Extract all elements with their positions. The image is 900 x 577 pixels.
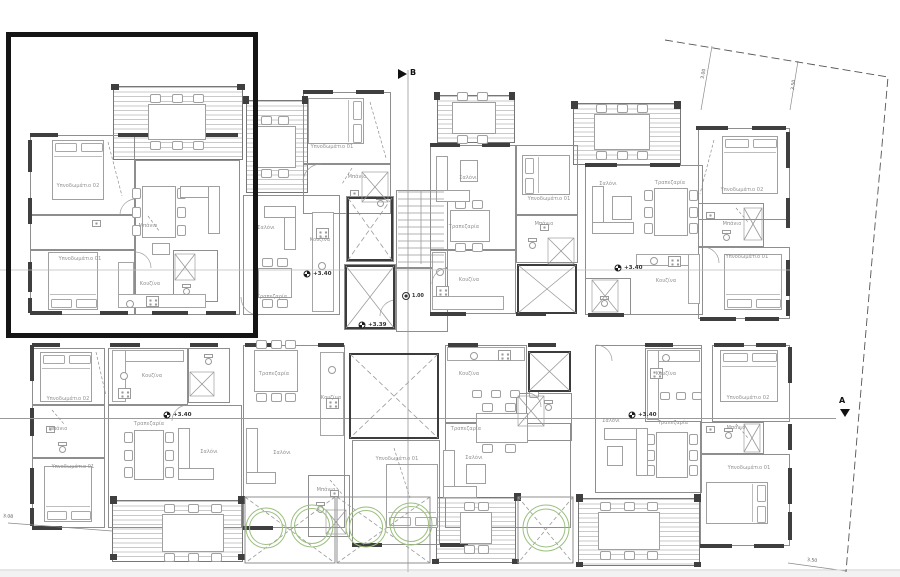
wc-tank — [544, 400, 553, 404]
wc-tank — [58, 442, 67, 446]
pillow — [389, 517, 411, 526]
toilet-icon — [182, 284, 191, 296]
dining-table-icon — [134, 430, 164, 480]
wall-segment — [318, 343, 344, 347]
sofa-icon — [612, 196, 632, 220]
sink-icon — [120, 372, 128, 380]
chair-icon — [689, 223, 698, 234]
wall-segment — [243, 526, 273, 530]
shaft-diagonal — [362, 172, 388, 202]
sofa-icon — [178, 428, 190, 480]
sofa-icon — [436, 156, 448, 202]
wall-segment — [674, 101, 681, 109]
wc-tank — [600, 296, 609, 300]
reference-line — [788, 563, 846, 571]
room-label: Τραπεζαρία — [134, 421, 164, 427]
shower-icon — [548, 238, 574, 264]
sofa-icon — [152, 243, 170, 255]
dimension-label: 3.00 — [701, 69, 708, 80]
door-swing-dash — [736, 424, 748, 438]
tree-planting-icon — [291, 505, 333, 547]
chair-icon — [455, 200, 466, 209]
wall-segment — [696, 126, 728, 130]
sofa-icon — [592, 186, 604, 234]
toilet-icon — [58, 442, 67, 454]
room-label: Μπάνιο — [535, 221, 554, 227]
chair-icon — [647, 502, 658, 511]
room-outline — [32, 458, 105, 528]
pillow — [525, 158, 534, 174]
kitchen-counter-icon — [647, 350, 700, 362]
blanket-line — [348, 100, 349, 142]
shower-icon — [362, 172, 388, 202]
wall-segment — [509, 92, 515, 100]
room-outline — [303, 164, 391, 214]
blanket-line — [388, 512, 436, 513]
wall-segment — [430, 143, 460, 147]
sofa-icon — [636, 428, 648, 476]
chair-icon — [278, 169, 289, 178]
level-marker-value: +3.40 — [638, 412, 657, 418]
room-label: Υπνοδωμάτιο 01 — [728, 465, 771, 471]
door-swing-arc — [380, 300, 396, 316]
tree-planting-icon — [390, 503, 432, 545]
shaft-diagonal — [175, 254, 195, 280]
keynote-symbol-icon — [402, 292, 410, 300]
shaft-diagonal — [190, 372, 214, 396]
dining-table-icon — [256, 126, 296, 168]
chair-icon — [211, 553, 222, 562]
section-marker-b-label: B — [410, 68, 416, 77]
room-outline — [396, 268, 448, 332]
wall-segment — [786, 198, 790, 228]
shaft-diagonal — [518, 497, 573, 563]
toilet-icon — [544, 400, 553, 412]
kitchen-counter-icon — [320, 352, 344, 436]
balcony-deck-area — [437, 95, 515, 143]
chair-icon — [188, 504, 199, 513]
room-outline — [712, 345, 790, 422]
kitchen-counter-icon — [647, 350, 659, 420]
chair-icon — [277, 258, 288, 267]
room-label: Μπάνιο — [139, 223, 158, 229]
room-outline — [243, 345, 345, 528]
sofa-icon — [208, 186, 220, 234]
pillow — [81, 143, 103, 152]
room-label: Υπνοδωμάτιο 01 — [528, 196, 571, 202]
level-marker-value: +3.40 — [173, 412, 192, 418]
sink-icon — [650, 257, 658, 265]
pillow — [723, 353, 748, 362]
door-swing-arc — [135, 252, 151, 268]
shaft-diagonal — [518, 396, 544, 426]
bar-stool-icon — [660, 392, 670, 400]
shaft-diagonal — [346, 266, 394, 328]
sink-icon — [126, 300, 134, 308]
chair-icon — [689, 434, 698, 445]
toilet-icon — [316, 502, 325, 514]
balcony-deck-area — [112, 500, 243, 562]
wc-bowl — [59, 446, 66, 453]
door-swing-arc — [527, 393, 541, 407]
room-label: Μπάνιο — [49, 426, 68, 432]
room-label: Κουζίνα — [656, 371, 676, 377]
room-outline — [585, 165, 703, 315]
chair-icon — [478, 502, 489, 511]
wall-segment — [694, 494, 701, 502]
wc-tank — [316, 502, 325, 506]
kitchen-counter-icon — [636, 254, 700, 266]
chair-icon — [262, 258, 273, 267]
chair-icon — [644, 207, 653, 218]
chair-icon — [464, 502, 475, 511]
room-label: Σαλόνι — [273, 450, 291, 456]
chair-icon — [617, 151, 628, 160]
wall-segment — [206, 311, 236, 315]
sofa-icon — [466, 464, 486, 484]
wall-segment — [528, 343, 556, 347]
chair-icon — [124, 432, 133, 443]
chair-icon — [164, 553, 175, 562]
shaft-diagonal — [190, 372, 214, 396]
stove-icon — [316, 228, 329, 239]
bed-icon — [722, 136, 778, 194]
wall-segment — [512, 559, 519, 564]
room-outline — [30, 135, 135, 215]
room-outline — [700, 454, 790, 546]
door-swing-dash — [108, 142, 122, 196]
wall-segment — [788, 424, 792, 450]
blanket-line — [538, 157, 539, 193]
level-marker-icon — [164, 412, 171, 419]
wall-segment — [514, 493, 521, 501]
chair-icon — [464, 545, 475, 554]
sink-icon — [328, 366, 336, 374]
chair-icon — [617, 104, 628, 113]
wall-segment — [576, 562, 583, 567]
chair-icon — [482, 403, 493, 412]
chair-icon — [256, 340, 267, 349]
sink-icon — [436, 268, 444, 276]
toilet-icon — [722, 230, 731, 242]
door-width-keynote: 1.00 — [402, 292, 424, 300]
room-label: Κουζίνα — [656, 278, 676, 284]
dining-table-icon — [598, 512, 660, 550]
chair-icon — [124, 467, 133, 478]
room-outline — [108, 405, 242, 528]
chair-icon — [193, 141, 204, 150]
room-outline — [595, 345, 702, 493]
planter-box — [245, 497, 335, 563]
room-label: Κουζίνα — [321, 395, 341, 401]
kitchen-counter-icon — [312, 212, 334, 312]
washbasin-icon — [46, 426, 55, 433]
room-label: Τραπεζαρία — [259, 371, 289, 377]
chair-icon — [637, 151, 648, 160]
tree-planting-icon — [523, 505, 569, 551]
toilet-icon — [376, 196, 385, 208]
sofa-icon — [178, 468, 214, 480]
room-outline — [108, 348, 188, 405]
room-label: Υπνοδωμάτιο 01 — [726, 254, 769, 260]
wc-bowl — [529, 242, 536, 249]
chair-icon — [132, 207, 141, 218]
wall-segment — [788, 468, 792, 504]
chair-icon — [689, 450, 698, 461]
wc-bowl — [545, 404, 552, 411]
room-outline — [585, 278, 631, 315]
room-label: Μπάνιο — [348, 174, 367, 180]
wall-segment — [714, 343, 744, 347]
wall-segment — [245, 343, 275, 347]
section-marker-a-label: A — [839, 396, 845, 405]
sofa-icon — [284, 206, 296, 250]
wall-segment — [237, 84, 245, 90]
shaft-diagonal — [245, 497, 335, 563]
wall-segment — [756, 343, 786, 347]
wall-segment — [754, 544, 784, 548]
dining-table-icon — [254, 350, 298, 392]
wc-tank — [376, 196, 385, 200]
wall-segment — [32, 343, 60, 347]
wall-segment — [30, 345, 34, 381]
dining-table-icon — [452, 102, 496, 134]
sofa-icon — [592, 222, 634, 234]
wall-segment — [118, 133, 148, 137]
sofa-icon — [246, 428, 258, 484]
dining-table-icon — [162, 514, 224, 552]
shaft-diagonal — [744, 424, 760, 452]
shaft-diagonal — [326, 510, 346, 534]
sofa-icon — [460, 160, 478, 182]
chair-icon — [261, 116, 272, 125]
blanket-line — [46, 506, 90, 507]
chair-icon — [624, 551, 635, 560]
chair-icon — [262, 299, 273, 308]
wall-segment — [788, 347, 792, 383]
stove-icon — [650, 368, 663, 379]
door-swing-arc — [432, 268, 448, 284]
chair-icon — [124, 450, 133, 461]
bed-icon — [48, 252, 98, 310]
wall-segment — [700, 544, 732, 548]
dining-table-icon — [148, 104, 206, 140]
balcony-deck-area — [573, 103, 681, 165]
wall-segment — [448, 343, 478, 347]
bed-icon — [706, 482, 768, 524]
room-label: Τραπεζαρία — [257, 294, 287, 300]
bed-icon — [52, 140, 104, 200]
chair-icon — [285, 340, 296, 349]
stove-icon — [146, 296, 159, 307]
wall-segment — [434, 92, 440, 100]
wall-segment — [238, 554, 245, 560]
keynote-value: 1.00 — [412, 294, 424, 299]
stove-icon — [326, 398, 339, 409]
wall-segment — [204, 133, 238, 137]
chair-icon — [689, 465, 698, 476]
wall-segment — [28, 298, 32, 313]
reference-line — [701, 46, 712, 110]
bar-stool-icon — [692, 392, 702, 400]
tree-planting-icon — [527, 509, 565, 547]
room-outline — [396, 190, 448, 268]
wc-tank — [204, 354, 213, 358]
level-marker-icon — [359, 322, 366, 329]
dimension-label: 3.50 — [791, 80, 797, 91]
wall-segment — [576, 494, 583, 502]
bar-stool-icon — [491, 390, 501, 398]
balcony-deck-area — [113, 86, 243, 160]
shaft-diagonal — [348, 198, 392, 260]
room-outline — [516, 215, 578, 263]
dining-table-icon — [654, 188, 688, 236]
chair-icon — [150, 141, 161, 150]
room-outline — [430, 145, 516, 250]
blanket-line — [50, 294, 96, 295]
bed-icon — [40, 352, 92, 402]
wc-bowl — [183, 288, 190, 295]
tree-planting-icon — [394, 507, 429, 542]
room-label: Σαλόνι — [602, 418, 620, 424]
room-outline — [698, 203, 764, 247]
wall-segment — [745, 317, 779, 321]
sink-icon — [470, 352, 478, 360]
chair-icon — [150, 94, 161, 103]
chair-icon — [596, 104, 607, 113]
stove-icon — [436, 286, 449, 297]
shaft-diagonal — [337, 497, 430, 563]
wall-segment — [352, 543, 382, 547]
room-label: Τραπεζαρία — [658, 420, 688, 426]
kitchen-counter-icon — [118, 262, 134, 308]
room-label: Μπάνιο — [723, 221, 742, 227]
chair-icon — [457, 135, 468, 144]
wall-segment — [588, 313, 624, 317]
wall-segment — [430, 312, 466, 316]
shaft-diagonal — [529, 352, 570, 391]
pillow — [727, 299, 752, 308]
chair-icon — [600, 502, 611, 511]
chair-icon — [647, 551, 658, 560]
room-label: Υπνοδωμάτιο 02 — [47, 396, 90, 402]
chair-icon — [644, 223, 653, 234]
pillow — [55, 143, 77, 152]
wall-segment — [111, 84, 119, 90]
chair-icon — [177, 188, 186, 199]
selection-highlight-rectangle — [6, 32, 258, 338]
room-label: Σαλόνι — [459, 175, 477, 181]
washbasin-icon — [92, 220, 101, 227]
reference-line — [790, 61, 798, 110]
wall-segment — [650, 163, 680, 167]
room-label: Σαλόνι — [257, 225, 275, 231]
door-swing-arc — [303, 164, 321, 182]
room-outline — [30, 250, 135, 315]
washbasin-icon — [540, 224, 549, 231]
chair-icon — [478, 545, 489, 554]
wc-tank — [528, 238, 537, 242]
stove-icon — [498, 350, 511, 361]
pillow — [756, 299, 781, 308]
pillow — [757, 506, 766, 523]
bar-stool-icon — [676, 392, 686, 400]
level-marker-icon — [629, 412, 636, 419]
shaft-diagonal — [518, 265, 576, 313]
chair-icon — [177, 225, 186, 236]
chair-icon — [165, 432, 174, 443]
shaft-diagonal — [337, 497, 430, 563]
chair-icon — [646, 465, 655, 476]
washbasin-icon — [706, 426, 715, 433]
bed-icon — [720, 350, 778, 402]
sofa-icon — [180, 186, 220, 198]
wc-tank — [722, 230, 731, 234]
chair-icon — [646, 450, 655, 461]
door-swing-dash — [148, 216, 160, 232]
ground-strip — [0, 571, 900, 577]
wall-segment — [302, 96, 308, 104]
chair-icon — [188, 553, 199, 562]
wall-segment — [30, 508, 34, 526]
level-marker-value: +3.40 — [624, 265, 643, 271]
blanket-line — [724, 152, 776, 153]
wall-segment — [694, 562, 701, 567]
blanket-line — [726, 294, 780, 295]
pillow — [51, 299, 72, 308]
pillow — [725, 139, 749, 148]
sink-icon — [662, 354, 670, 362]
chair-icon — [600, 551, 611, 560]
chair-icon — [285, 393, 296, 402]
blanket-line — [722, 366, 776, 367]
shaft-diagonal — [548, 238, 574, 264]
room-label: Κουζίνα — [459, 277, 479, 283]
chair-icon — [646, 434, 655, 445]
pillow — [757, 485, 766, 502]
room-label: Υπνοδωμάτιο 01 — [311, 144, 354, 150]
sofa-icon — [264, 206, 296, 218]
elevator-shaft — [348, 198, 392, 260]
wc-bowl — [601, 300, 608, 307]
pillow — [69, 355, 91, 364]
dining-table-icon — [258, 268, 292, 298]
sofa-icon — [607, 446, 623, 466]
washbasin-icon — [706, 212, 715, 219]
wall-segment — [571, 101, 578, 109]
wall-segment — [786, 132, 790, 168]
door-swing-arc — [172, 405, 188, 421]
washbasin-icon — [350, 190, 359, 197]
planter-box — [337, 497, 430, 563]
chair-icon — [177, 207, 186, 218]
shaft-diagonal — [245, 497, 335, 563]
wall-segment — [585, 163, 617, 167]
wall-segment — [30, 408, 34, 436]
chair-icon — [261, 169, 272, 178]
dimension-label: 3.50 — [807, 558, 818, 564]
kitchen-counter-icon — [432, 296, 504, 310]
tree-planting-icon — [350, 511, 383, 544]
chair-icon — [172, 141, 183, 150]
shower-icon — [744, 208, 762, 240]
room-label: Υπνοδωμάτιο 01 — [52, 464, 95, 470]
sofa-icon — [443, 486, 477, 498]
room-outline — [645, 348, 702, 422]
kitchen-counter-icon — [112, 350, 126, 402]
dining-table-icon — [142, 186, 176, 238]
door-swing-dash — [394, 448, 410, 498]
